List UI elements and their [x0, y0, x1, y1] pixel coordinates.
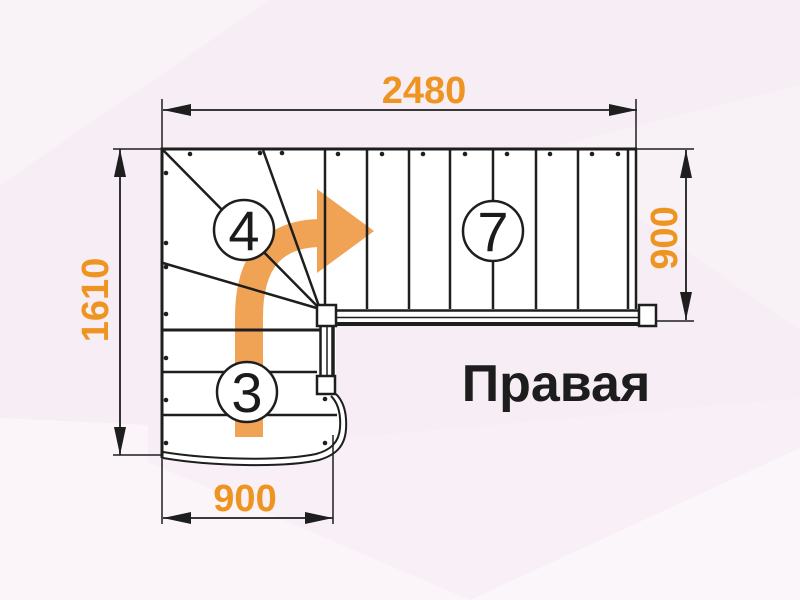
upper-flight-step-count: 7 [477, 200, 508, 263]
dimension-right-value: 900 [644, 206, 686, 269]
winder-step-count: 4 [228, 199, 259, 262]
corner-post [317, 305, 336, 326]
staircase-plan-drawing: 2480 1610 900 900 4 7 3 Правая [0, 0, 800, 600]
lower-flight-step-count: 3 [231, 361, 262, 424]
dimension-left-value: 1610 [75, 258, 117, 343]
end-post [639, 305, 656, 326]
dimension-top-value: 2480 [382, 70, 467, 112]
dimension-bottom-value: 900 [213, 478, 276, 520]
mid-post [317, 376, 335, 394]
plan-canvas: 2480 1610 900 900 4 7 3 Правая [0, 0, 800, 600]
orientation-label: Правая [462, 355, 651, 413]
